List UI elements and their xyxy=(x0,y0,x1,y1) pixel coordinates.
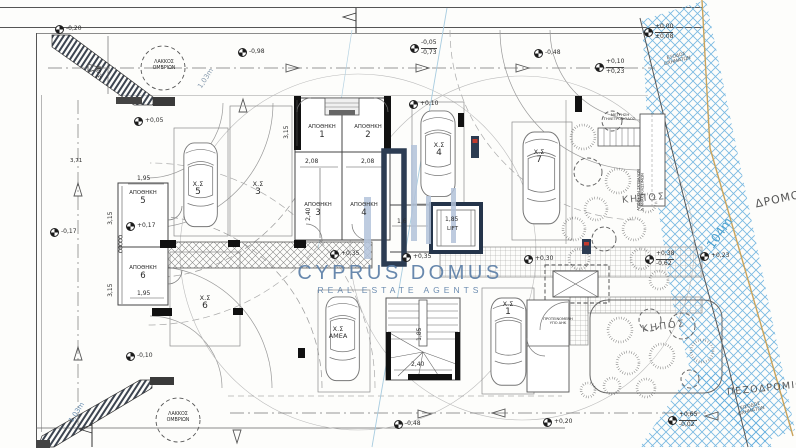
rain-pit-label-top: ΛΑΚΚΟΣ ΟΜΒΡΙΩΝ xyxy=(146,60,182,71)
parking-space-5: Χ.Σ5 xyxy=(183,181,213,197)
parking-number: 5 xyxy=(183,188,213,197)
benchmark-icon xyxy=(402,253,411,262)
level-value: +0,20 xyxy=(554,419,572,426)
level-marker: +0,30 xyxy=(524,255,553,264)
level-value: +0,35 xyxy=(341,251,359,258)
parking-space-7: Χ.Σ7 xyxy=(524,149,554,165)
level-value: +0,05 xyxy=(145,118,163,125)
storage-room-2: ΑΠΟΘΗΚΗ2 xyxy=(351,125,385,140)
storage-room-3: ΑΠΟΘΗΚΗ3 xyxy=(301,203,335,218)
level-value: +0,23 xyxy=(606,68,624,75)
level-marker: +0,65-0,02 xyxy=(668,412,697,428)
watermark-tagline: REAL ESTATE AGENTS xyxy=(310,285,490,295)
level-value: -0,62 xyxy=(656,260,672,267)
level-value: ±0,00 xyxy=(655,24,673,33)
benchmark-icon xyxy=(524,255,533,264)
dimension-label: 1,95 xyxy=(137,176,150,183)
storage-room-1: ΑΠΟΘΗΚΗ1 xyxy=(305,125,339,140)
benchmark-icon xyxy=(50,228,59,237)
parking-number: 1 xyxy=(493,308,523,317)
storage-number: 4 xyxy=(347,209,381,218)
level-marker: +0,35 xyxy=(330,250,359,259)
dimension-label: 1,95 xyxy=(137,291,150,298)
benchmark-icon xyxy=(238,48,247,57)
dimension-label: 3,15 xyxy=(284,126,291,139)
dimension-label: 2,40 xyxy=(411,362,424,369)
dimension-label: 3,15 xyxy=(108,284,115,297)
dimension-label: 2,08 xyxy=(361,159,374,166)
benchmark-icon xyxy=(534,49,543,58)
benchmark-icon xyxy=(644,28,653,37)
level-value: +0,65 xyxy=(679,412,697,421)
benchmark-icon xyxy=(668,416,677,425)
benchmark-icon xyxy=(394,420,403,429)
storage-number: 5 xyxy=(126,197,160,206)
level-value: +0,38 xyxy=(656,251,674,260)
level-value: -0,73 xyxy=(421,49,437,56)
benchmark-icon xyxy=(55,25,64,34)
level-value: +0,23 xyxy=(711,253,729,260)
parking-space-amea: Χ.ΣΑΜΕΑ xyxy=(323,326,353,340)
dimension-label: 3,15 xyxy=(108,212,115,225)
watermark-brand: CYPRUS DOMUS xyxy=(280,262,520,285)
parking-number: 6 xyxy=(190,302,220,311)
level-value: +0,35 xyxy=(413,254,431,261)
level-marker: -0,48 xyxy=(394,420,421,429)
level-marker: +0,23 xyxy=(700,252,729,261)
dimension-label: 1,85 xyxy=(445,217,458,224)
level-value: ±0,08 xyxy=(655,33,673,40)
lift-label: LIFT xyxy=(447,226,458,232)
storage-room-6: ΑΠΟΘΗΚΗ6 xyxy=(126,266,160,281)
level-value: +0,10 xyxy=(420,101,438,108)
level-value: +0,30 xyxy=(535,256,553,263)
benchmark-icon xyxy=(543,418,552,427)
storage-number: 1 xyxy=(305,131,339,140)
floor-plan-canvas: CYPRUS DOMUS REAL ESTATE AGENTS -0,20 +0… xyxy=(0,0,796,448)
parking-space-6: Χ.Σ6 xyxy=(190,295,220,311)
dimension-label: 1,6 xyxy=(397,219,407,226)
benchmark-icon xyxy=(595,63,604,72)
storage-number: 3 xyxy=(301,209,335,218)
benchmark-icon xyxy=(330,250,339,259)
level-value: -0,02 xyxy=(679,421,695,428)
level-marker: -0,05-0,73 xyxy=(410,40,437,56)
parking-space-1: Χ.Σ1 xyxy=(493,301,523,317)
dimension-label: 3,00 xyxy=(97,66,104,79)
benchmark-icon xyxy=(410,44,419,53)
level-marker: +0,05 xyxy=(134,117,163,126)
dimension-label: 3,71 xyxy=(70,158,82,164)
level-marker: +0,20 xyxy=(543,418,572,427)
level-marker: +0,35 xyxy=(402,253,431,262)
level-value: -0,48 xyxy=(405,421,421,428)
waste-room-label: ΑΠΟΘΗΚΗ ΣΚΥΒΑΛΩΝ& ΑΝΑΚΥΚΛΩΣΙΜΩΝ xyxy=(636,169,645,211)
dimension-label: 1,85 xyxy=(417,328,424,341)
level-marker: -0,20 xyxy=(55,25,82,34)
level-value: -0,48 xyxy=(545,50,561,57)
level-marker: -0,48 xyxy=(534,49,561,58)
substation-line2: ΥΠΟ ΑΗΚ xyxy=(539,321,577,325)
benchmark-icon xyxy=(409,100,418,109)
level-marker: +0,10 xyxy=(409,100,438,109)
parking-space-3: Χ.Σ3 xyxy=(243,181,273,197)
parking-number: 4 xyxy=(424,149,454,158)
level-marker: -0,10 xyxy=(126,352,153,361)
level-marker: +0,17 xyxy=(126,222,155,231)
parking-number: ΑΜΕΑ xyxy=(323,333,353,340)
level-marker: +0,10+0,23 xyxy=(595,59,624,75)
meters-label: ΜΕΤΡΗΣΗ ΤΗΛΕΤΡΟΦΟΔΟΣ. xyxy=(596,113,644,122)
benchmark-icon xyxy=(126,222,135,231)
level-marker: -0,98 xyxy=(238,48,265,57)
level-marker: ±0,00±0,08 xyxy=(644,24,673,40)
substation-label: ΠΡΟΤΕΙΝΟΜΕΝΗΥΠΟ ΑΗΚ xyxy=(539,317,577,325)
benchmark-icon xyxy=(134,117,143,126)
level-marker: -0,17 xyxy=(50,228,77,237)
parking-number: 3 xyxy=(243,188,273,197)
storage-room-5: ΑΠΟΘΗΚΗ5 xyxy=(126,191,160,206)
parking-number: 7 xyxy=(524,156,554,165)
level-marker: +0,38-0,62 xyxy=(645,251,674,267)
level-value: -0,20 xyxy=(66,26,82,33)
dimension-label: 2,08 xyxy=(305,159,318,166)
level-value: +0,10 xyxy=(606,59,624,68)
level-value: -0,98 xyxy=(249,49,265,56)
level-value: +0,17 xyxy=(137,223,155,230)
benchmark-icon xyxy=(126,352,135,361)
storage-number: 2 xyxy=(351,131,385,140)
level-value: -0,17 xyxy=(61,229,77,236)
waste-room-line2: & ΑΝΑΚΥΚΛΩΣΙΜΩΝ xyxy=(641,169,645,211)
level-value: -0,10 xyxy=(137,353,153,360)
storage-number: 6 xyxy=(126,272,160,281)
benchmark-icon xyxy=(700,252,709,261)
storage-room-4: ΑΠΟΘΗΚΗ4 xyxy=(347,203,381,218)
parking-space-4: Χ.Σ4 xyxy=(424,142,454,158)
benchmark-icon xyxy=(645,255,654,264)
rain-pit-label-bottom: ΛΑΚΚΟΣ ΟΜΒΡΙΩΝ xyxy=(160,412,196,423)
level-value: -0,05 xyxy=(421,40,437,49)
